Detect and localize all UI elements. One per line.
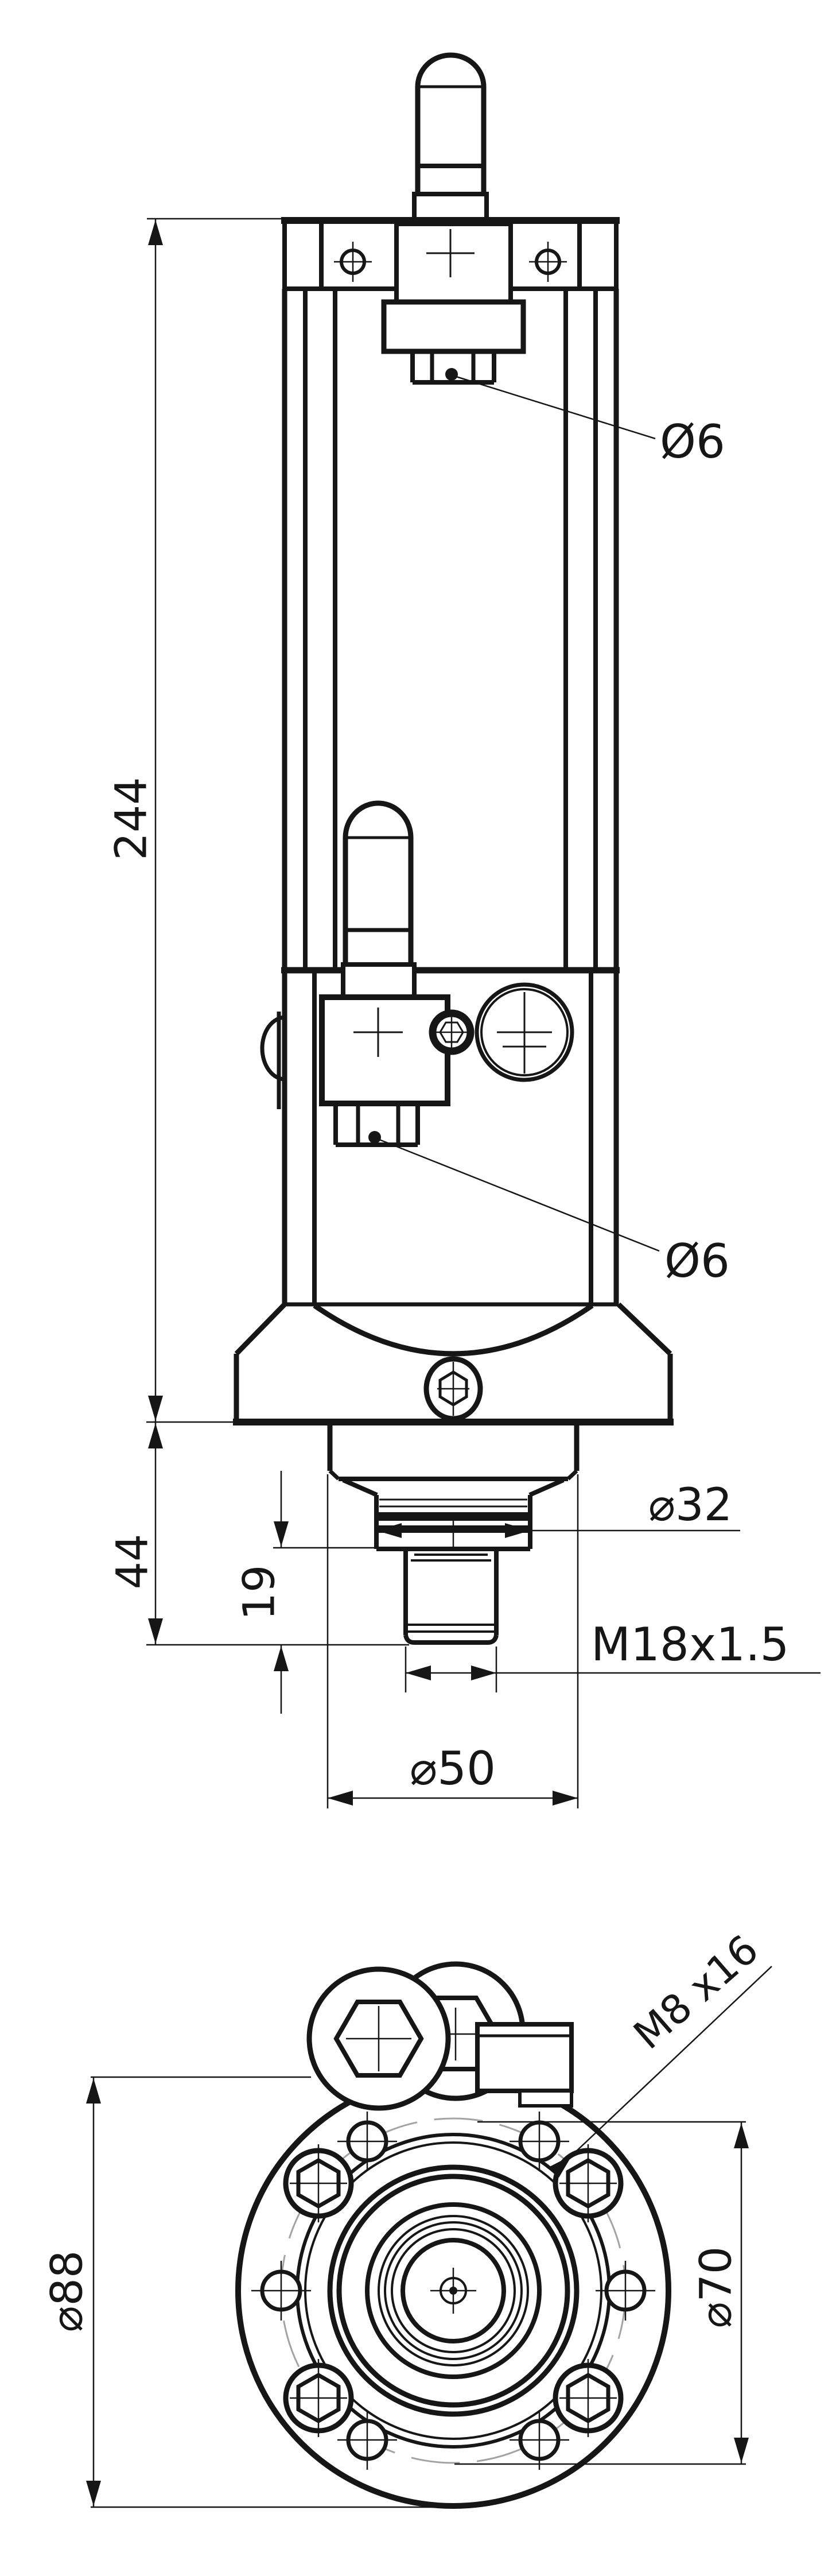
- label-vent-top: Ø6: [660, 415, 725, 468]
- cap-hole-right: [529, 242, 567, 282]
- mounting-flange: [233, 1304, 674, 1422]
- label-thread-spec: M18x1.5: [591, 1618, 789, 1671]
- bottom-view: ⌀88 ⌀70 M8 x16: [41, 1926, 772, 2507]
- left-port-boss: [262, 1012, 285, 1109]
- label-bolt-circle-diameter: ⌀70: [690, 2246, 741, 2328]
- technical-drawing: 244 Ø6 Ø6 44 19 ⌀32 M18x1.5 ⌀50: [0, 0, 836, 2576]
- label-vent-mid: Ø6: [664, 1234, 730, 1288]
- valve-block: [322, 997, 448, 1103]
- label-thread-length: 19: [234, 1565, 285, 1621]
- dim-244: [147, 219, 285, 1422]
- hex-set-screw: [433, 1013, 471, 1051]
- thread-stem-m18: [406, 1549, 496, 1643]
- lower-vent-nub: [336, 1103, 418, 1145]
- middle-plunger: [343, 803, 414, 997]
- label-neck-diameter: ⌀32: [648, 1479, 732, 1531]
- leader-vent-top: [456, 377, 655, 439]
- collar: [330, 1422, 577, 1479]
- label-collar-diameter: ⌀50: [410, 1742, 496, 1795]
- body-tube: [281, 289, 620, 1304]
- vent-hole-mid-dot: [368, 1131, 381, 1144]
- top-cap: [281, 220, 620, 302]
- top-fitting: [384, 302, 523, 382]
- drawing-sheet: 244 Ø6 Ø6 44 19 ⌀32 M18x1.5 ⌀50: [0, 0, 836, 2576]
- front-view: 244 Ø6 Ø6 44 19 ⌀32 M18x1.5 ⌀50: [106, 55, 821, 1808]
- cap-hole-left: [334, 242, 372, 282]
- side-port-circle: [477, 985, 572, 1080]
- label-flange-diameter: ⌀88: [41, 2250, 92, 2332]
- label-flange-to-tip: 44: [107, 1534, 158, 1590]
- vent-hole-top-dot: [445, 368, 458, 381]
- top-plunger: [414, 55, 487, 220]
- flange-front-bolt: [426, 1359, 480, 1419]
- front-knob: [309, 1969, 448, 2108]
- label-overall-height: 244: [106, 777, 157, 860]
- dim-19: [273, 1471, 378, 1714]
